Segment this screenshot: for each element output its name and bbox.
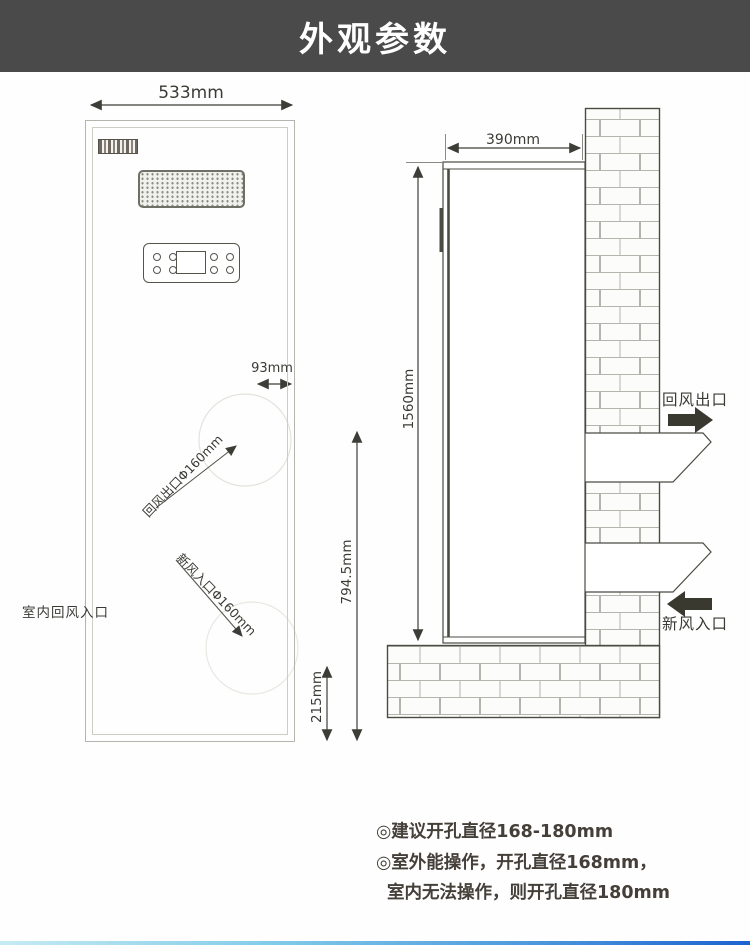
indoor-return-inlet-label: 室内回风入口 [22, 601, 109, 621]
return-air-duct [580, 433, 711, 482]
front-width-dim-label: 533mm [88, 83, 294, 103]
note-line: 室内无法操作，则开孔直径180mm [376, 878, 670, 909]
exterior-wall [586, 109, 660, 718]
unit-depth-dim-label: 390mm [468, 132, 558, 148]
fresh-air-inlet-label: 新风入口 [662, 612, 728, 634]
hole-offset-dim-label: 93mm [246, 361, 298, 376]
appearance-parameters-page: 外观参数 [0, 0, 750, 945]
floor-base [388, 646, 660, 718]
control-button [226, 266, 234, 274]
unit-height-dim-label: 1560mm [401, 359, 417, 439]
outlet-height-dim-label: 794.5mm [339, 531, 355, 613]
display-screen [176, 251, 206, 274]
bottom-accent-bar [0, 941, 750, 945]
control-button [210, 266, 218, 274]
fresh-air-duct [580, 543, 711, 592]
control-button [210, 253, 218, 261]
bottom-offset-dim-label: 215mm [309, 666, 325, 728]
return-air-outlet-label: 回风出口 [662, 388, 728, 410]
brand-logo [98, 139, 138, 154]
unit-side-profile [440, 162, 586, 643]
control-button [153, 266, 161, 274]
control-button [153, 253, 161, 261]
side-handle [440, 208, 444, 252]
note-line: ◎建议开孔直径168-180mm [376, 817, 670, 848]
drilling-notes: ◎建议开孔直径168-180mm ◎室外能操作，开孔直径168mm， 室内无法操… [376, 817, 670, 909]
control-button [226, 253, 234, 261]
note-line: ◎室外能操作，开孔直径168mm， [376, 848, 670, 879]
intake-grille [138, 170, 245, 208]
airflow-out-arrow-icon [668, 407, 713, 433]
control-buttons-right [206, 250, 238, 276]
